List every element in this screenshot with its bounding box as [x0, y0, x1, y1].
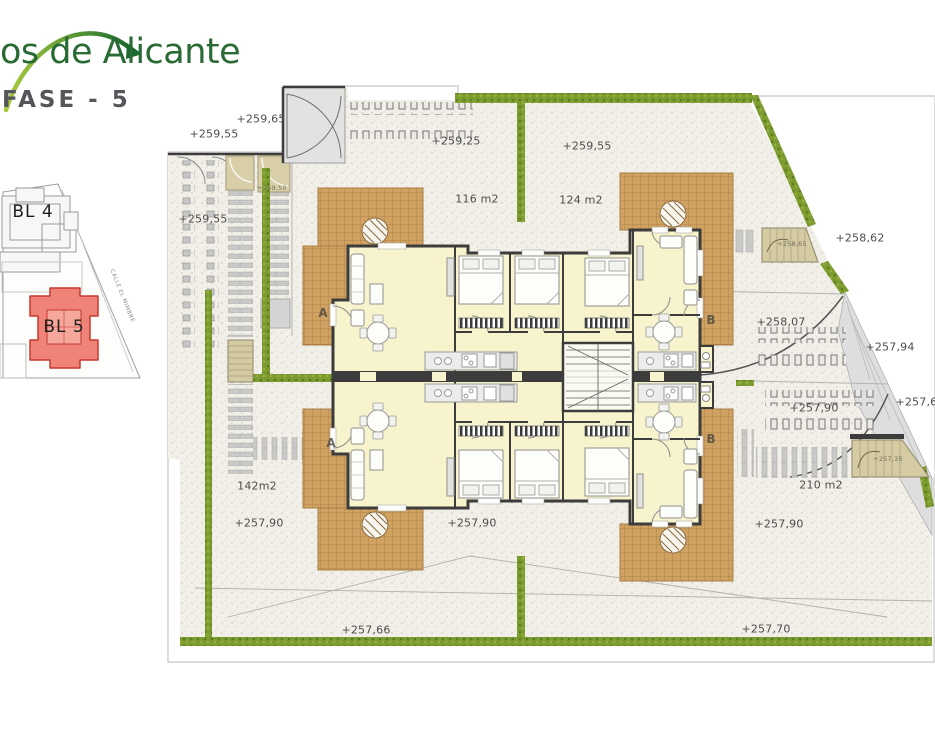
elevation-label: +259,65	[236, 113, 285, 126]
elevation-label: +257,70	[741, 623, 790, 636]
site-plan-bl4-label: BL 4	[12, 202, 53, 222]
elevation-label: +259,55	[562, 140, 611, 153]
elevation-label: +259,55	[178, 213, 227, 226]
unit-label-b2: B	[706, 432, 715, 446]
elevation-label: +257,90	[754, 518, 803, 531]
area-label: 142m2	[237, 480, 277, 493]
elevation-label: +259,55	[189, 128, 238, 141]
unit-label-b1: B	[706, 313, 715, 327]
area-label: 210 m2	[799, 479, 842, 492]
logo-text: os de Alicante	[0, 32, 240, 72]
elevation-label: +257,65	[895, 396, 935, 409]
site-plan-bl5-label: BL 5	[43, 317, 84, 337]
elevation-label: +257,94	[865, 341, 914, 354]
elevation-label: +259,50	[257, 184, 287, 192]
unit-label-a1: A	[318, 306, 327, 320]
elevation-label: +257,90	[447, 517, 496, 530]
elevation-label: +258,62	[835, 232, 884, 245]
elevation-label: +257,66	[341, 624, 390, 637]
elevation-label: +259,25	[431, 135, 480, 148]
elevation-label: +258,65	[777, 240, 807, 248]
elevation-label: +257,35	[873, 455, 903, 463]
area-label: 124 m2	[559, 194, 602, 207]
elevation-label: +257,90	[234, 517, 283, 530]
plan-drawing	[0, 0, 935, 735]
area-label: 116 m2	[455, 193, 498, 206]
phase-label: FASE - 5	[2, 87, 131, 113]
elevation-label: +257,90	[789, 402, 838, 415]
elevation-label: +258,07	[756, 316, 805, 329]
unit-label-a2: A	[326, 436, 335, 450]
floor-plan-page: os de Alicante FASE - 5 BL 4 BL 5 CALLE …	[0, 0, 935, 735]
